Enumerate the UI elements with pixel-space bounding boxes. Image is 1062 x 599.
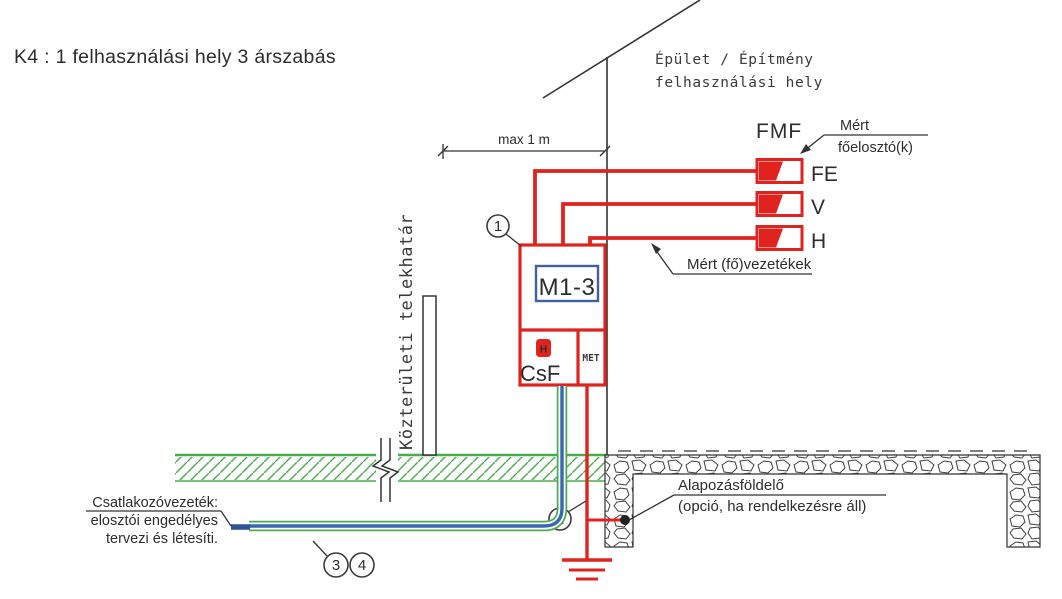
distributor-symbol-h xyxy=(757,227,802,250)
callout-1-number: 1 xyxy=(494,218,502,235)
foundation-earth-dot xyxy=(620,515,630,525)
ground-hatch-right xyxy=(398,457,606,480)
fmf-note-line2: főelosztó(k) xyxy=(838,140,913,156)
fmf-label: FMF xyxy=(756,120,802,143)
csf-label: CsF xyxy=(520,361,560,386)
distributor-symbol-v xyxy=(757,193,802,216)
foundation-note-line2: (opció, ha rendelkezésre áll) xyxy=(678,498,866,515)
building-label-line1: Épület / Építmény xyxy=(655,51,814,68)
cable-note-line2: elosztói engedélyes xyxy=(91,513,218,529)
schematic-page: K4 : 1 felhasználási hely 3 árszabás Épü… xyxy=(0,0,1062,599)
fmf-note-line1: Mért xyxy=(840,118,869,134)
callout-1-leader xyxy=(506,234,521,246)
boundary-label: Közterületi telekhatár xyxy=(397,214,417,450)
diagram-title: K4 : 1 felhasználási hely 3 árszabás xyxy=(14,46,336,68)
measured-mains-leader xyxy=(655,249,673,274)
boundary-break-symbol xyxy=(373,438,398,502)
cable-note-line1: Csatlakozóvezeték: xyxy=(92,495,218,511)
connection-diagram: K4 : 1 felhasználási hely 3 árszabás Épü… xyxy=(0,0,1062,599)
measured-mains-arrowhead xyxy=(651,243,661,254)
tariff-label-fe: FE xyxy=(811,163,838,186)
boundary-post xyxy=(423,296,436,455)
wire-fe xyxy=(535,171,757,246)
ground-hatch-left xyxy=(175,457,376,480)
cable-note-line3: tervezi és létesíti. xyxy=(106,531,218,547)
measured-mains-text: Mért (fő)vezetékek xyxy=(687,256,812,273)
wire-h xyxy=(590,238,757,246)
dimension-max-1m: max 1 m xyxy=(438,132,610,159)
fuse-icon-label: H xyxy=(540,345,547,356)
distributor-symbol-fe xyxy=(757,160,802,183)
fmf-note-arrowhead xyxy=(800,144,811,154)
fmf-note: Mért főelosztó(k) xyxy=(800,118,928,156)
callout-4-number: 4 xyxy=(358,557,366,574)
meter-id: M1-3 xyxy=(539,274,596,301)
cable-note: Csatlakozóvezeték: elosztói engedélyes t… xyxy=(86,495,231,547)
callout-2-leader xyxy=(568,501,586,512)
callout-3-4: 3 4 xyxy=(313,541,374,577)
foundation-earth-note: Alapozásföldelő (opció, ha rendelkezésre… xyxy=(629,477,886,520)
callout-1: 1 xyxy=(487,215,521,246)
callout-3-leader xyxy=(313,541,327,556)
building-label-line2: felhasználási hely xyxy=(655,75,823,91)
callout-3-number: 3 xyxy=(332,557,340,574)
foundation-note-line1: Alapozásföldelő xyxy=(678,477,784,494)
cable-note-leader xyxy=(221,511,231,526)
foundation-note-leader xyxy=(629,495,674,520)
meter-cabinet: M1-3 H CsF MET xyxy=(520,245,605,386)
tariff-label-v: V xyxy=(811,196,825,219)
met-label: MET xyxy=(582,353,599,364)
tariff-label-h: H xyxy=(811,230,826,253)
dimension-label: max 1 m xyxy=(498,132,550,147)
